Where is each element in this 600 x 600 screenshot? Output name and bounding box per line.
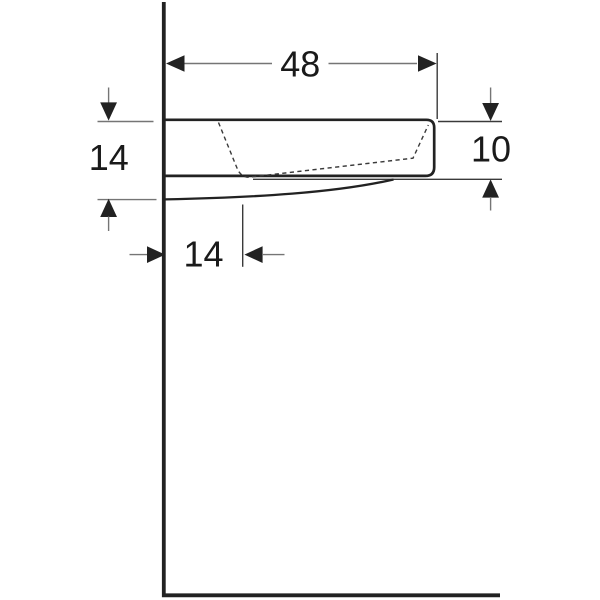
dim14B-arrowhead-left [244,246,262,263]
basin-hidden-bowl-contour-dashed [219,123,429,178]
dim14L-arrowhead-down [100,102,117,120]
dim10-arrowhead-down [482,103,499,121]
dim48-arrowhead-left [166,55,185,71]
dimension-bottom-depth: 14 [130,205,285,275]
dimension-right-height: 10 [471,88,511,211]
dim14B-label: 14 [183,234,223,275]
washbasin-side-profile-drawing: 48 14 10 14 [0,0,600,600]
dim48-arrowhead-right [418,55,437,71]
apron-curve [165,180,393,200]
dim10-arrowhead-up [482,179,499,197]
dimension-top-width: 48 [166,44,437,120]
dim14L-label: 14 [89,137,129,178]
basin-profile-outline [164,120,434,176]
dim48-label: 48 [280,44,320,85]
dim14L-arrowhead-up [100,199,117,217]
dimension-left-height: 14 [89,88,157,232]
dim10-label: 10 [471,129,511,170]
drawing-canvas: 48 14 10 14 [0,0,600,600]
wall-and-floor-line [164,2,500,595]
